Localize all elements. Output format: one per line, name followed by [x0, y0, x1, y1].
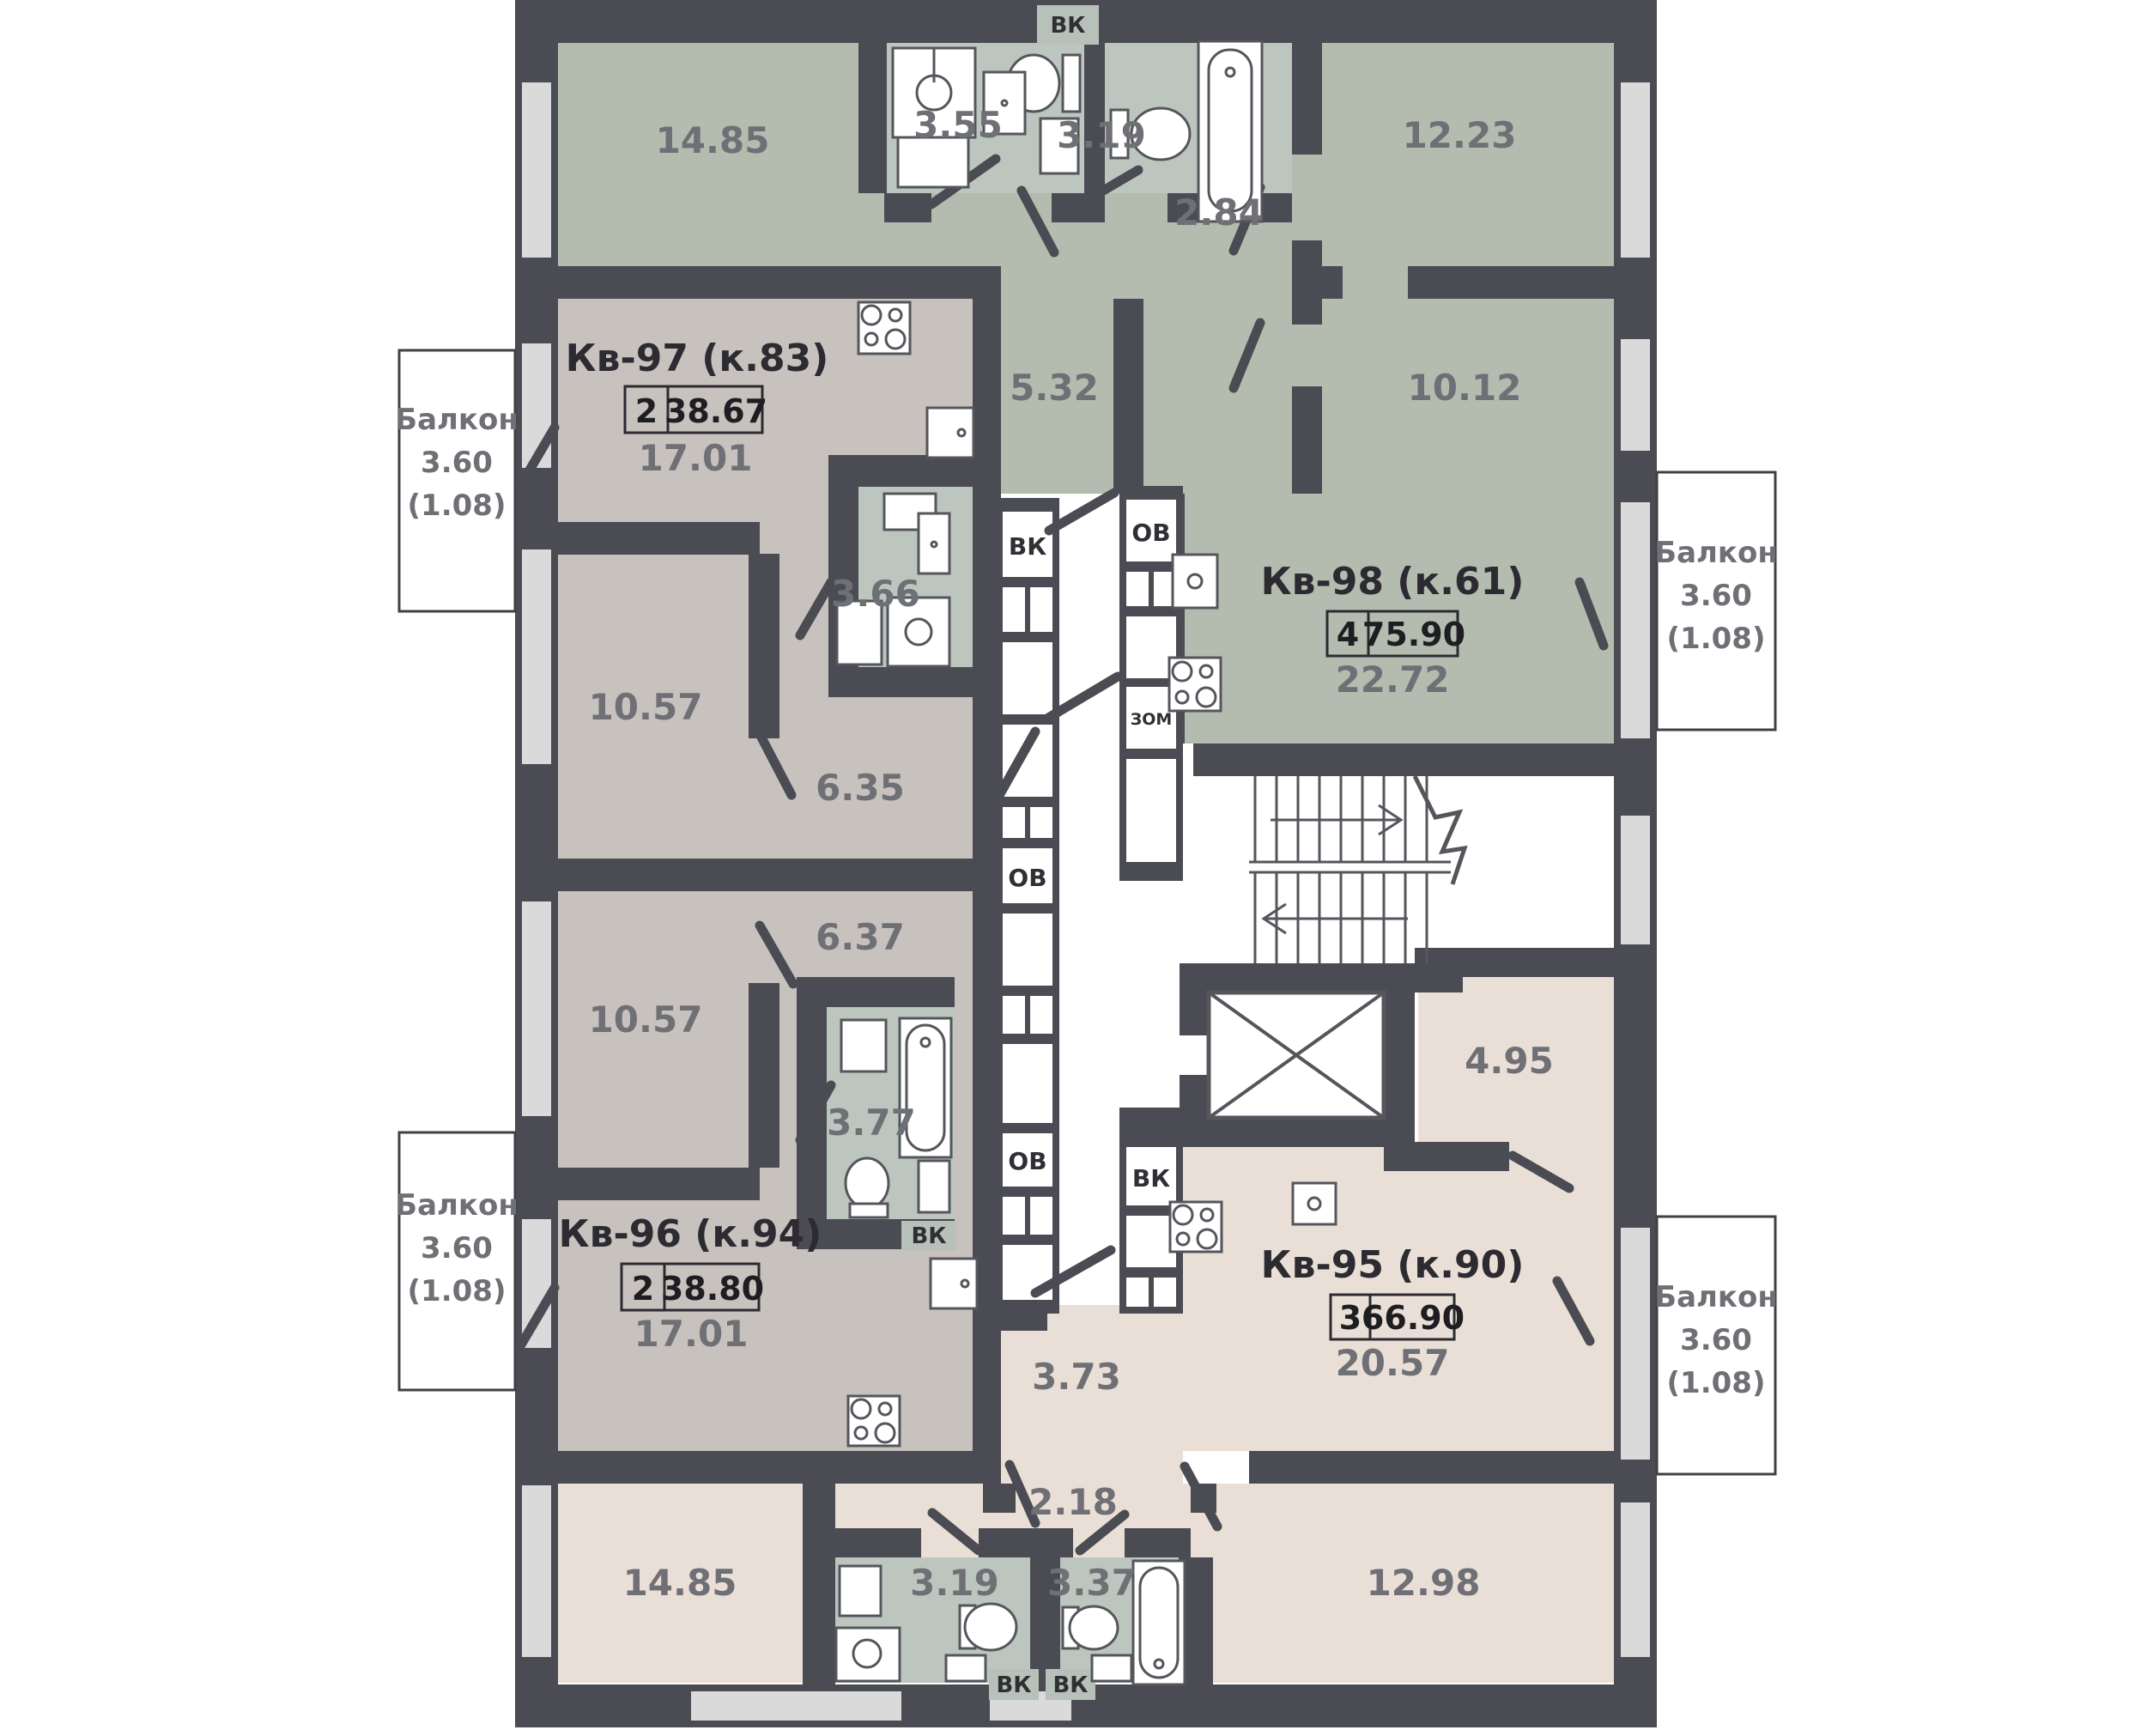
apartment-title: Кв-96 (к.94) [559, 1212, 822, 1256]
apartment-rooms: 2 [632, 1270, 654, 1308]
area-kv98-hall2: 5.32 [1010, 367, 1099, 409]
window [522, 82, 551, 258]
apartment-rooms: 3 [1339, 1299, 1362, 1337]
balcony-label: Балкон [395, 403, 519, 437]
apartment-main-area: 22.72 [1336, 659, 1450, 701]
window [1621, 339, 1650, 451]
balcony-door-window [1621, 502, 1650, 738]
shaft-ov-label: ОВ [1131, 519, 1170, 547]
window [691, 1691, 901, 1721]
balcony-area: 3.60 [1680, 1323, 1752, 1357]
area-kv95-room3: 4.95 [1465, 1040, 1554, 1082]
bathtub-drain-icon [1155, 1660, 1163, 1668]
apartment-main-area: 17.01 [634, 1313, 749, 1355]
stairs [1249, 776, 1465, 963]
area-kv95-room2: 12.98 [1367, 1562, 1481, 1604]
vk-badge-label: ВК [1050, 13, 1085, 39]
area-kv98-room3: 10.12 [1408, 367, 1522, 409]
area-kv95-hall1: 3.73 [1032, 1356, 1121, 1398]
balcony-door-window [1621, 1228, 1650, 1460]
balcony-top-left [399, 350, 515, 611]
balcony-coef: (1.08) [408, 489, 506, 523]
shaft-vk-label: ВК [1132, 1164, 1170, 1193]
sink-icon [946, 1655, 986, 1681]
window [522, 901, 551, 1116]
balcony-coef: (1.08) [408, 1274, 506, 1308]
window [1621, 1502, 1650, 1657]
door-handle-icon [961, 1280, 968, 1287]
area-kv98-room2: 12.23 [1403, 114, 1517, 156]
floor-plan: Балкон 3.60 (1.08) Балкон 3.60 (1.08) Ба… [0, 0, 2147, 1736]
apartment-title: Кв-98 (к.61) [1261, 560, 1525, 604]
vk-badge-label: ВК [911, 1223, 946, 1249]
balcony-label: Балкон [1654, 536, 1778, 570]
sink-icon [840, 1566, 881, 1616]
balcony-area: 3.60 [421, 446, 493, 480]
vk-badge-label: ВК [1052, 1672, 1088, 1698]
area-kv97-hall: 6.35 [816, 767, 905, 809]
apartment-title: Кв-97 (к.83) [566, 337, 829, 380]
door-handle-icon [958, 429, 965, 436]
window [1621, 82, 1650, 258]
shaft-ov-label: ОВ [1008, 1147, 1046, 1175]
balcony-area: 3.60 [1680, 579, 1752, 613]
door-handle-icon [931, 542, 937, 547]
toilet-icon [1070, 1606, 1118, 1649]
door-handle-icon [1002, 100, 1007, 106]
toilet-tank-icon [850, 1204, 888, 1217]
elevator [1209, 992, 1384, 1118]
balcony-area: 3.60 [421, 1231, 493, 1266]
shaft-zom-label: ЗОМ [1131, 710, 1173, 729]
area-kv96-room1: 10.57 [589, 999, 703, 1041]
apartment-rooms: 2 [635, 392, 658, 430]
toilet-icon [846, 1158, 889, 1208]
stair-break-symbol [1415, 776, 1465, 884]
area-kv95-bath2: 3.37 [1047, 1562, 1137, 1604]
apartment-main-area: 20.57 [1336, 1342, 1450, 1384]
room-kv98-1012-band [1143, 266, 1614, 494]
apartment-total-area: 38.80 [661, 1270, 764, 1308]
area-kv95-hall2: 2.18 [1028, 1481, 1118, 1523]
area-kv98-room1: 14.85 [656, 119, 770, 161]
window [1621, 816, 1650, 944]
door-leaf-icon [919, 1161, 949, 1212]
shaft-ov-label: ОВ [1008, 864, 1046, 892]
shower-drain-icon [906, 619, 931, 645]
shower-drain-icon [853, 1640, 881, 1667]
area-kv97-room1: 10.57 [589, 686, 703, 728]
vk-badge-label: ВК [996, 1672, 1031, 1698]
shaft-vk-label: ВК [1009, 532, 1046, 561]
area-kv98-bath1: 3.55 [913, 104, 1003, 146]
entry-door-icon [927, 408, 973, 458]
balcony-label: Балкон [1654, 1280, 1778, 1314]
bathtub-drain-icon [1226, 68, 1234, 76]
toilet-icon [965, 1604, 1016, 1650]
area-kv97-bath: 3.66 [831, 573, 920, 615]
area-kv96-hall: 6.37 [816, 916, 905, 958]
apartment-total-area: 66.90 [1362, 1299, 1465, 1337]
bathtub-drain-icon [921, 1038, 930, 1047]
sink-icon [1092, 1655, 1131, 1681]
apartment-total-area: 75.90 [1362, 616, 1465, 653]
toilet-tank-icon [1063, 55, 1080, 112]
area-kv96-bath: 3.77 [827, 1102, 916, 1144]
area-kv95-bath1: 3.19 [910, 1562, 999, 1604]
window [522, 1485, 551, 1657]
window [522, 549, 551, 764]
room-kv95-living [1183, 1142, 1614, 1451]
apartment-total-area: 38.67 [664, 392, 767, 430]
sink-icon [841, 1020, 886, 1071]
entry-door-icon [931, 1259, 977, 1308]
apartment-title: Кв-95 (к.90) [1261, 1243, 1525, 1287]
balcony-coef: (1.08) [1667, 622, 1766, 656]
balcony-label: Балкон [395, 1188, 519, 1223]
area-kv98-hall1: 2.84 [1174, 191, 1264, 234]
apartment-rooms: 4 [1337, 616, 1359, 653]
area-kv95-room1: 14.85 [623, 1562, 737, 1604]
balcony-coef: (1.08) [1667, 1366, 1766, 1400]
area-kv98-bath2: 3.19 [1057, 114, 1146, 156]
apartment-main-area: 17.01 [639, 437, 753, 479]
